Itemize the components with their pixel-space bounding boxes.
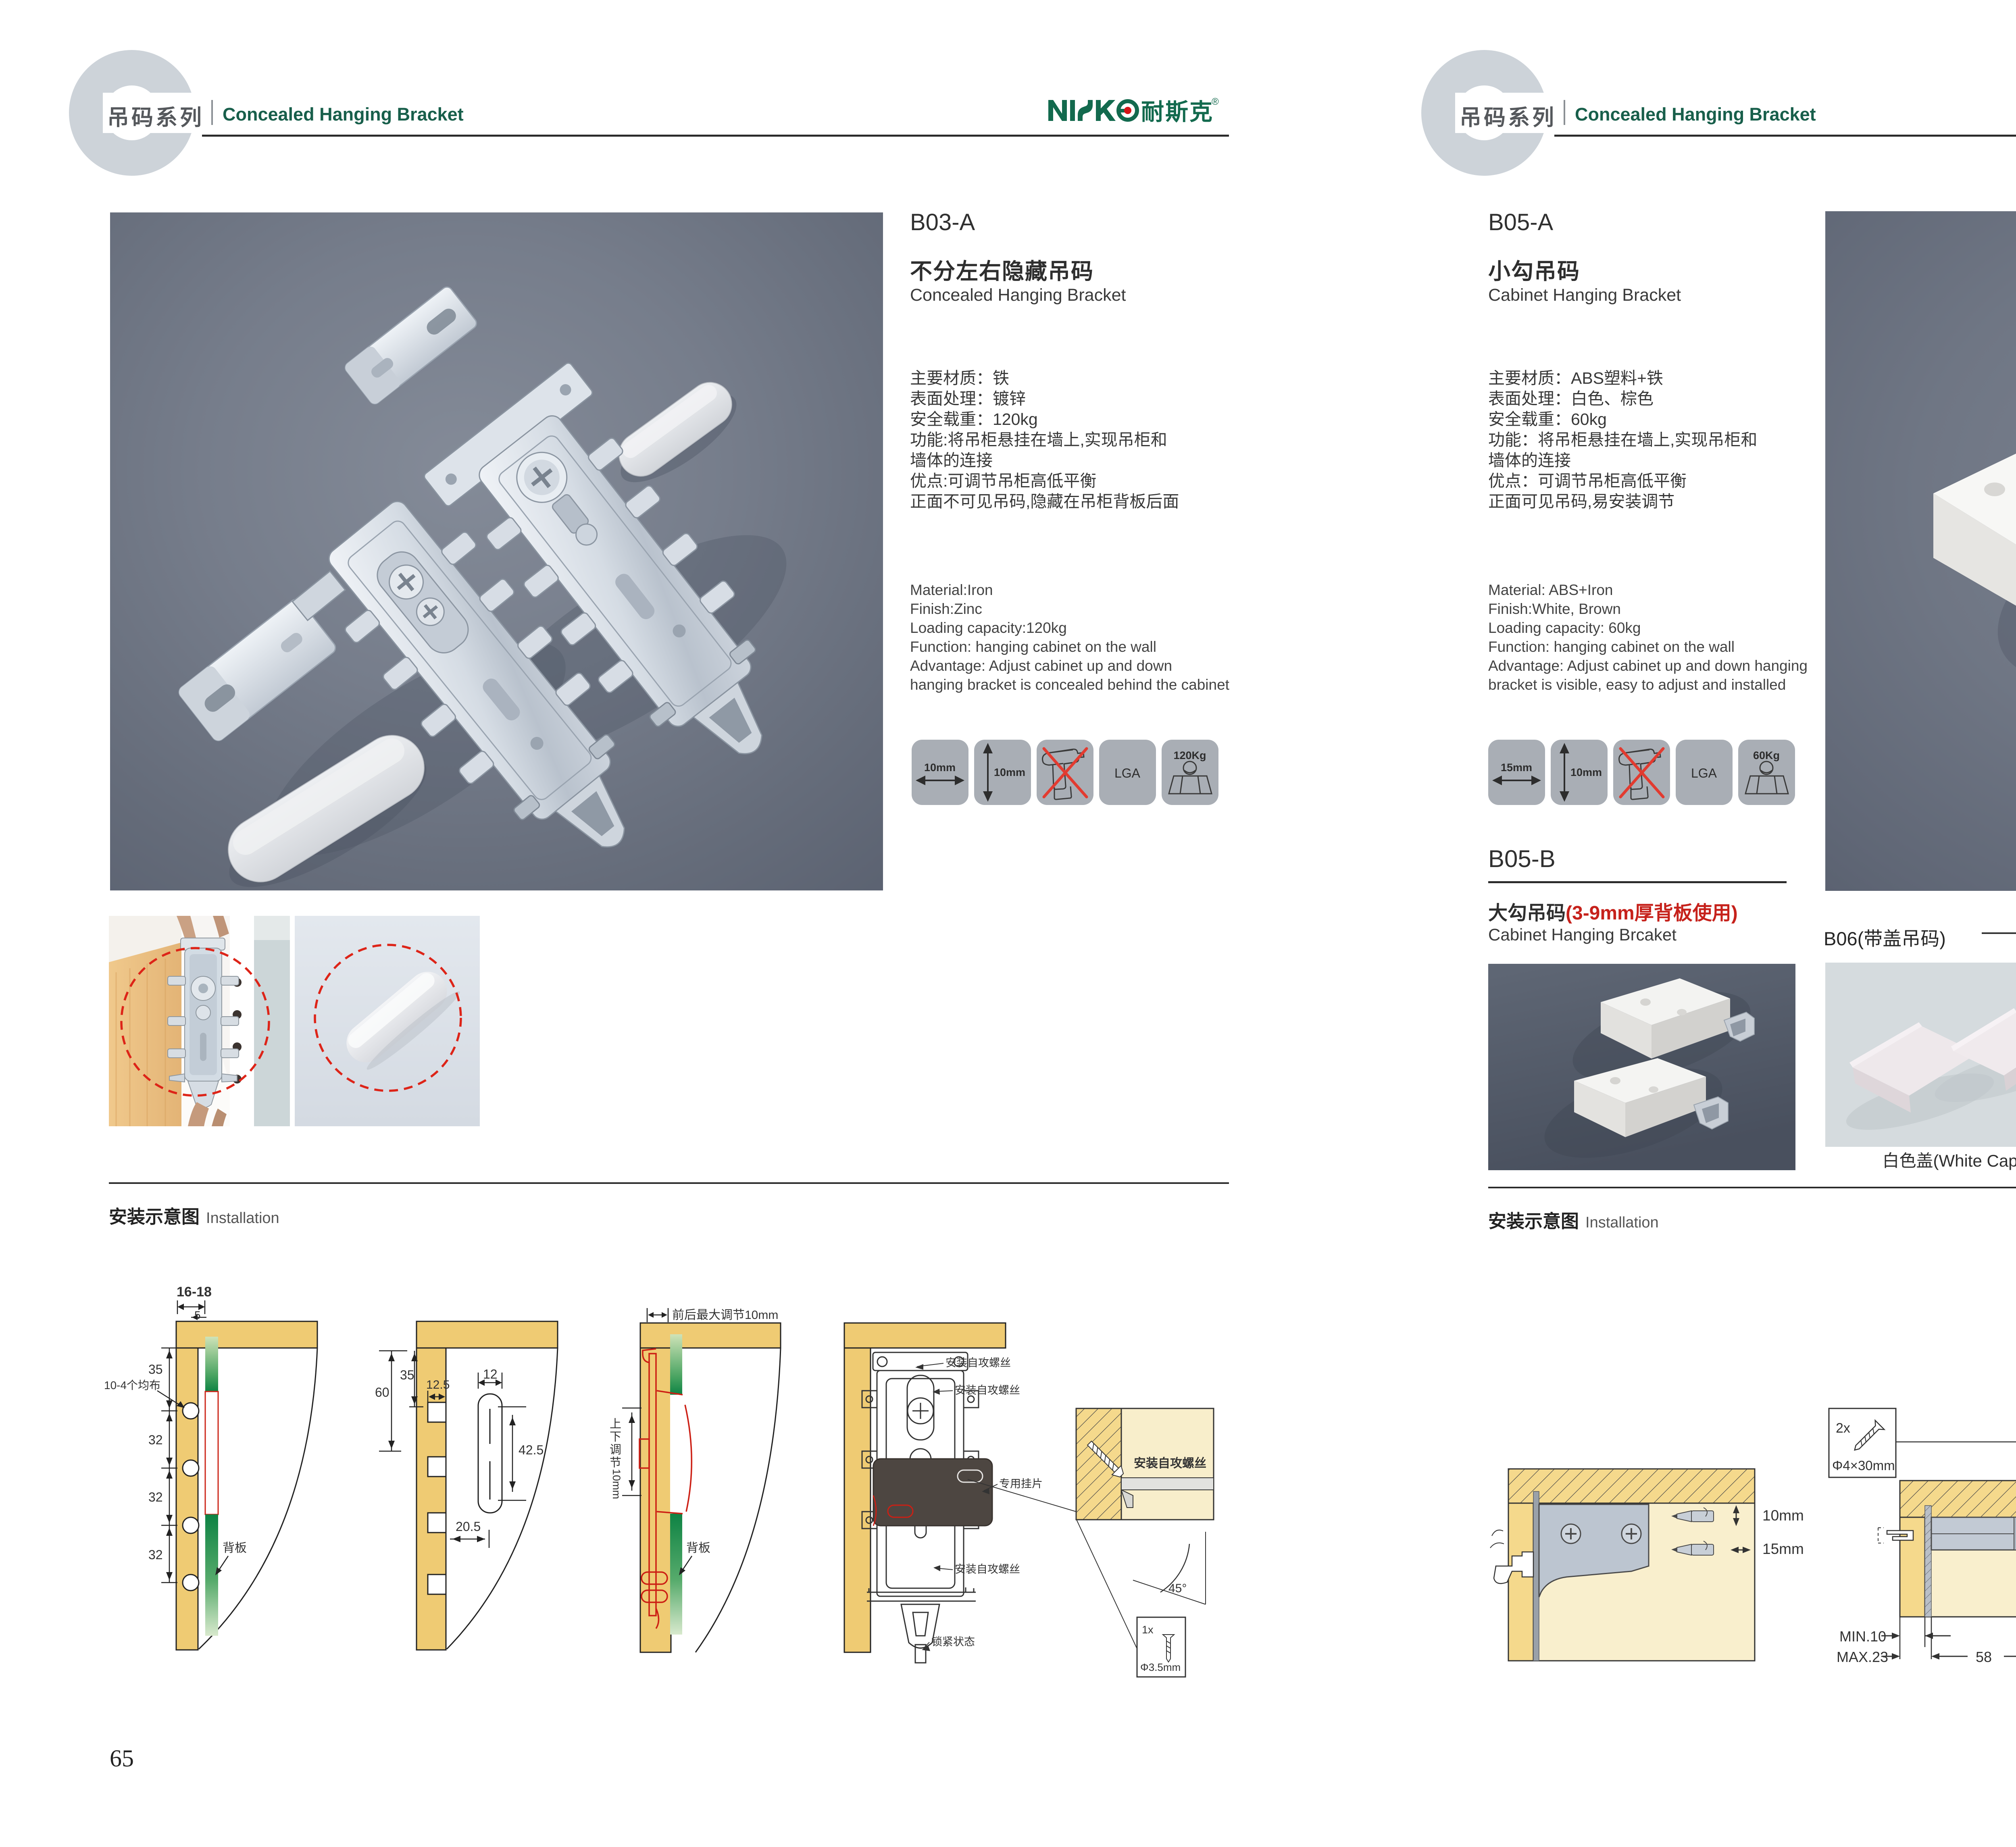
- svg-text:®: ®: [1212, 97, 1219, 107]
- svg-text:安装自攻螺丝: 安装自攻螺丝: [955, 1384, 1020, 1396]
- svg-text:10mm: 10mm: [994, 766, 1025, 778]
- svg-text:10mm: 10mm: [1570, 766, 1602, 778]
- svg-text:背板: 背板: [686, 1541, 710, 1555]
- svg-text:58: 58: [1976, 1649, 1992, 1665]
- svg-text:MAX.23: MAX.23: [1837, 1649, 1888, 1665]
- svg-text:45°: 45°: [1168, 1582, 1187, 1595]
- svg-text:10mm: 10mm: [1762, 1507, 1804, 1524]
- svg-text:调: 调: [610, 1443, 621, 1456]
- svg-text:2x: 2x: [1836, 1421, 1850, 1436]
- svg-text:安装自攻螺丝: 安装自攻螺丝: [946, 1357, 1011, 1369]
- svg-text:42.5: 42.5: [519, 1443, 544, 1457]
- svg-text:耐斯克: 耐斯克: [1141, 99, 1214, 125]
- svg-text:20.5: 20.5: [456, 1519, 481, 1534]
- svg-text:60: 60: [375, 1385, 389, 1400]
- svg-text:32: 32: [148, 1490, 163, 1504]
- svg-text:15mm: 15mm: [1501, 761, 1532, 774]
- svg-text:MIN.10: MIN.10: [1839, 1628, 1886, 1645]
- svg-text:上: 上: [610, 1418, 621, 1431]
- svg-text:15mm: 15mm: [1762, 1541, 1804, 1557]
- svg-text:安装自攻螺丝: 安装自攻螺丝: [955, 1563, 1020, 1575]
- svg-text:12.5: 12.5: [426, 1378, 450, 1391]
- svg-text:35: 35: [148, 1362, 163, 1377]
- svg-text:35: 35: [400, 1368, 414, 1382]
- svg-text:32: 32: [148, 1433, 163, 1447]
- svg-text:Φ3.5mm: Φ3.5mm: [1140, 1661, 1181, 1673]
- svg-text:专用挂片: 专用挂片: [999, 1478, 1043, 1490]
- svg-text:32: 32: [148, 1547, 163, 1562]
- svg-text:背板: 背板: [223, 1541, 247, 1555]
- svg-text:锁紧状态: 锁紧状态: [931, 1636, 975, 1648]
- svg-text:12: 12: [483, 1367, 498, 1381]
- svg-text:120Kg: 120Kg: [1173, 749, 1206, 761]
- svg-text:前后最大调节10mm: 前后最大调节10mm: [672, 1308, 778, 1322]
- svg-text:LGA: LGA: [1114, 766, 1141, 780]
- svg-text:节: 节: [610, 1456, 621, 1469]
- svg-text:10mm: 10mm: [924, 761, 956, 774]
- svg-text:60Kg: 60Kg: [1753, 749, 1780, 761]
- svg-text:安装自攻螺丝: 安装自攻螺丝: [1134, 1457, 1206, 1470]
- svg-text:1x: 1x: [1142, 1624, 1154, 1636]
- svg-text:16-18: 16-18: [177, 1284, 212, 1300]
- svg-text:10-4个均布: 10-4个均布: [104, 1379, 160, 1391]
- svg-text:LGA: LGA: [1691, 766, 1717, 780]
- svg-text:10mm: 10mm: [610, 1469, 623, 1499]
- svg-text:Φ4×30mm: Φ4×30mm: [1832, 1458, 1895, 1473]
- svg-text:下: 下: [610, 1431, 621, 1443]
